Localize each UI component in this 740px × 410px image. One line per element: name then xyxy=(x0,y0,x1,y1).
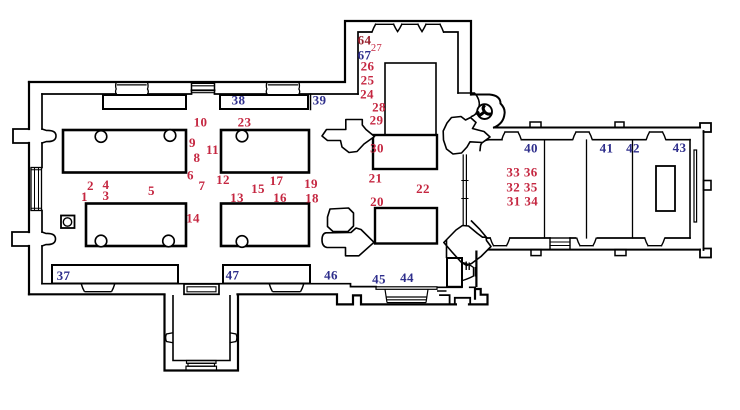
svg-text:42: 42 xyxy=(626,140,640,155)
svg-text:8: 8 xyxy=(194,150,201,165)
svg-text:32 35: 32 35 xyxy=(506,179,537,194)
svg-text:21: 21 xyxy=(369,170,383,185)
svg-text:22: 22 xyxy=(416,181,430,196)
svg-text:27: 27 xyxy=(371,43,382,54)
svg-text:10: 10 xyxy=(194,114,208,129)
svg-text:7: 7 xyxy=(199,178,206,193)
svg-text:2: 2 xyxy=(87,178,94,193)
svg-text:12: 12 xyxy=(216,172,230,187)
svg-text:64: 64 xyxy=(358,32,372,47)
svg-text:33 36: 33 36 xyxy=(506,164,537,179)
svg-text:16: 16 xyxy=(273,190,287,205)
svg-text:46: 46 xyxy=(324,267,338,282)
svg-text:44: 44 xyxy=(400,270,414,285)
svg-text:18: 18 xyxy=(305,190,319,205)
svg-text:9: 9 xyxy=(189,135,196,150)
svg-text:6: 6 xyxy=(187,167,194,182)
svg-text:40: 40 xyxy=(524,140,538,155)
svg-text:41: 41 xyxy=(600,140,614,155)
svg-text:23: 23 xyxy=(238,114,252,129)
svg-text:30: 30 xyxy=(370,140,384,155)
svg-text:31 34: 31 34 xyxy=(507,193,538,208)
svg-text:11: 11 xyxy=(206,142,219,157)
svg-text:20: 20 xyxy=(370,194,384,209)
svg-text:47: 47 xyxy=(226,267,240,282)
svg-text:14: 14 xyxy=(186,210,200,225)
svg-text:4: 4 xyxy=(103,177,110,192)
svg-text:67: 67 xyxy=(358,47,372,62)
svg-text:39: 39 xyxy=(313,92,327,107)
svg-text:17: 17 xyxy=(270,173,284,188)
svg-text:15: 15 xyxy=(251,181,265,196)
svg-text:43: 43 xyxy=(673,140,687,155)
svg-text:5: 5 xyxy=(148,183,155,198)
svg-text:29: 29 xyxy=(370,112,384,127)
svg-text:45: 45 xyxy=(372,271,386,286)
svg-text:13: 13 xyxy=(230,190,244,205)
svg-text:25: 25 xyxy=(361,72,375,87)
svg-text:38: 38 xyxy=(232,92,246,107)
svg-text:19: 19 xyxy=(304,176,318,191)
svg-text:37: 37 xyxy=(57,268,71,283)
